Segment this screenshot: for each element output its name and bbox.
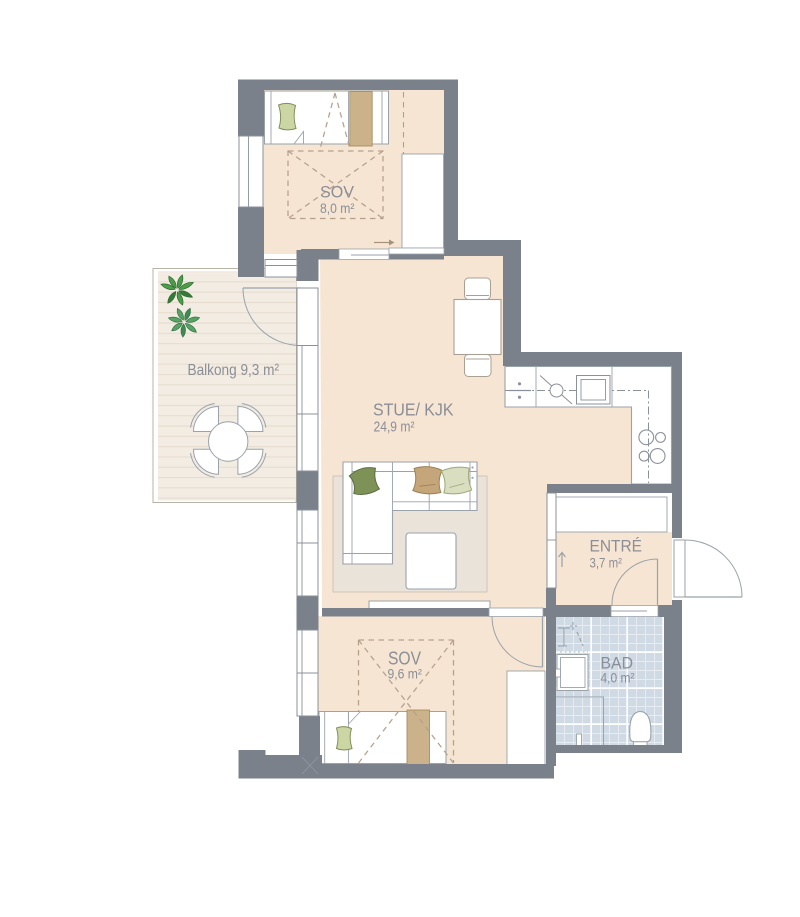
- svg-text:STUE/ KJK: STUE/ KJK: [373, 399, 454, 419]
- svg-text:Balkong 9,3 m²: Balkong 9,3 m²: [188, 362, 280, 379]
- svg-text:3,7 m²: 3,7 m²: [590, 555, 623, 571]
- svg-text:BAD: BAD: [601, 653, 634, 672]
- svg-text:ENTRÉ: ENTRÉ: [590, 537, 643, 556]
- svg-text:24,9 m²: 24,9 m²: [374, 419, 415, 435]
- svg-text:9,6 m²: 9,6 m²: [388, 666, 423, 682]
- svg-text:SOV: SOV: [320, 183, 355, 202]
- svg-text:8,0 m²: 8,0 m²: [320, 200, 355, 216]
- svg-text:4,0 m²: 4,0 m²: [601, 671, 635, 686]
